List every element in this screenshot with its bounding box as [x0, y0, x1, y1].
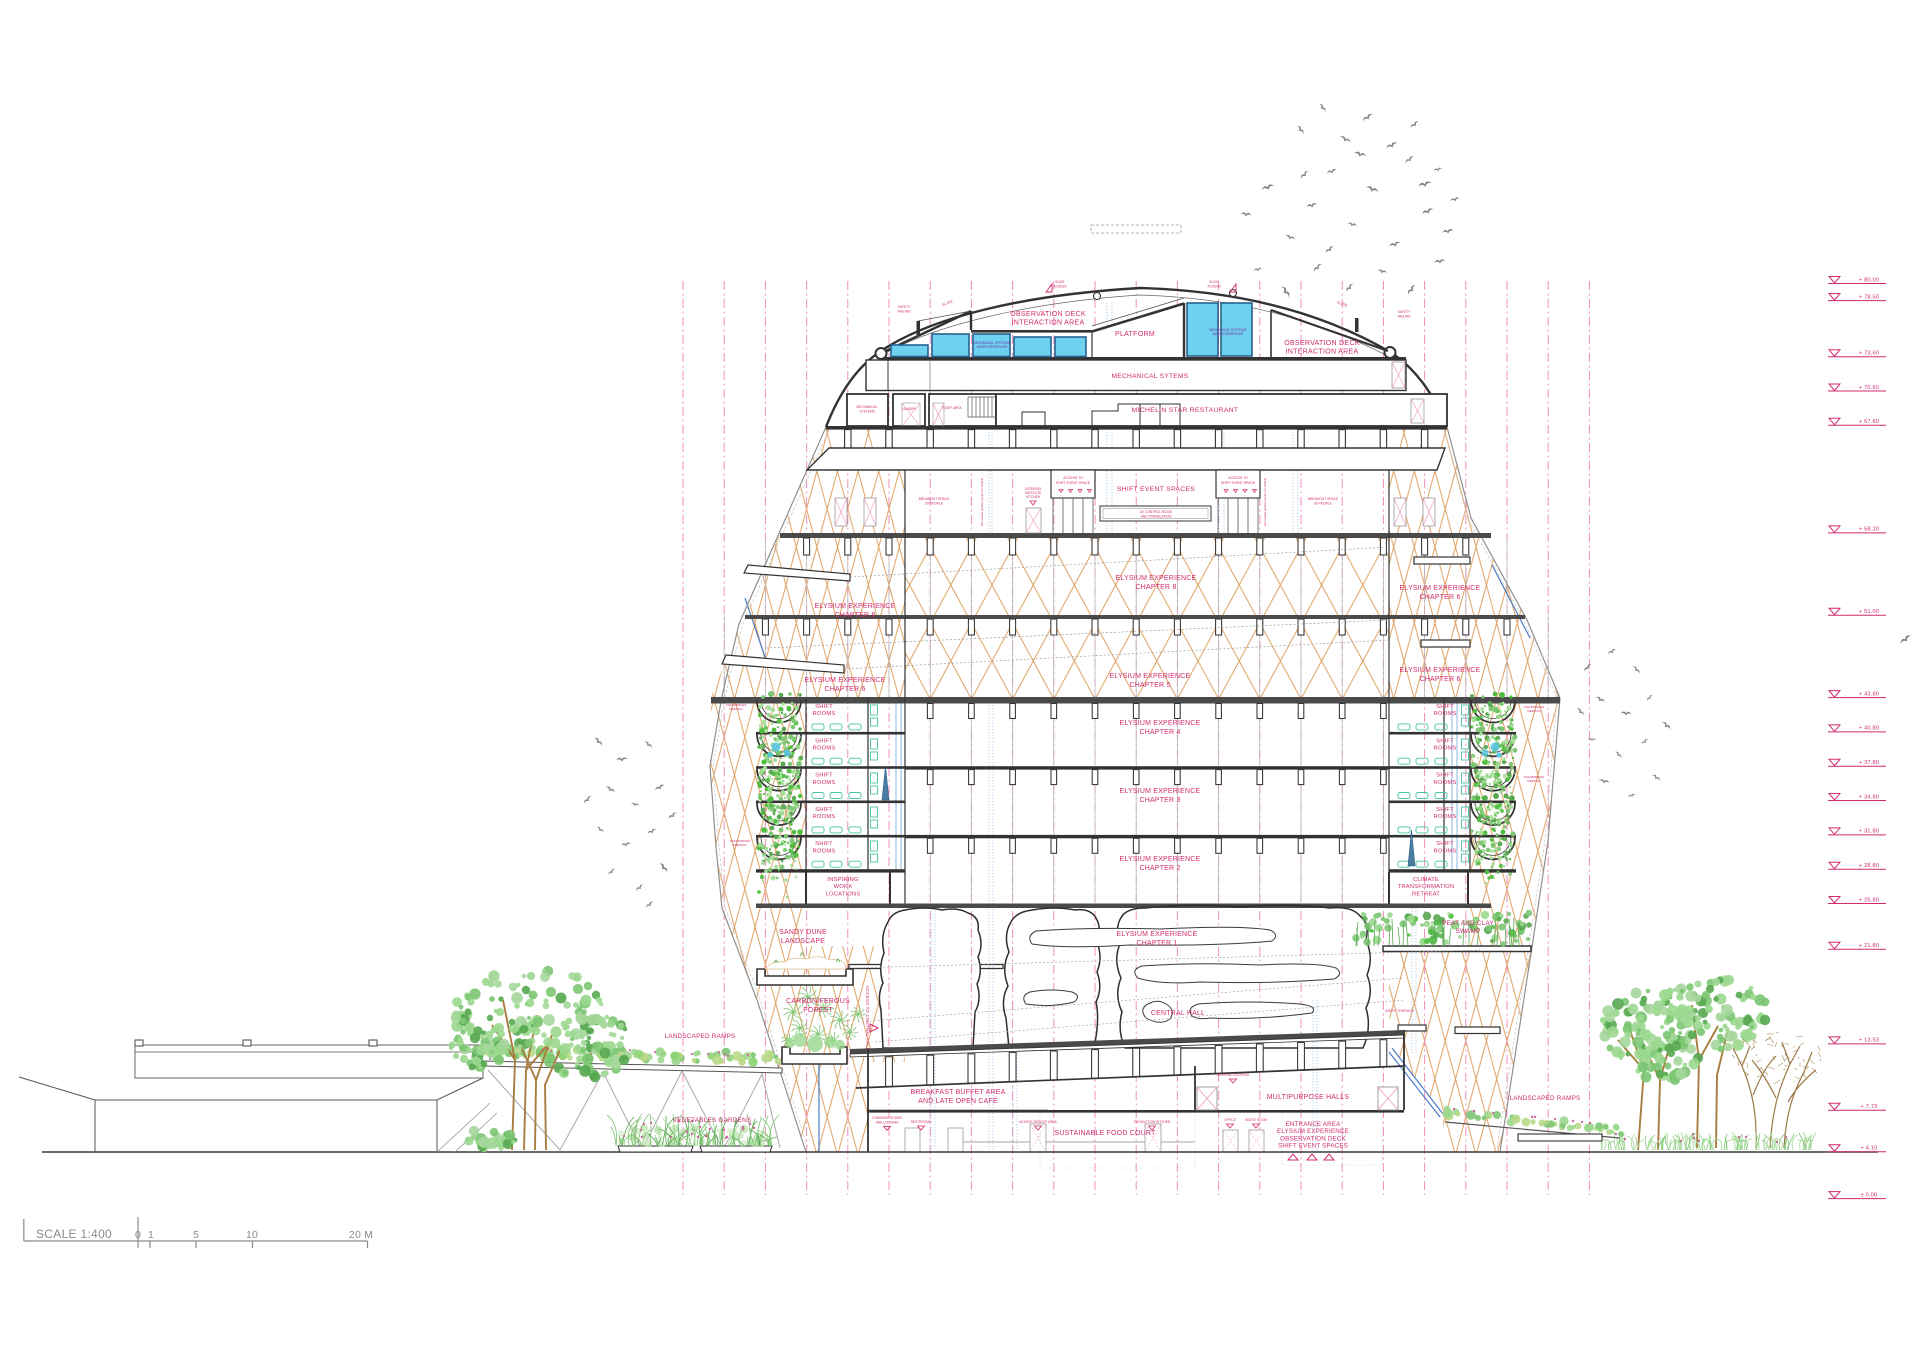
- svg-text:OBSERVATION DECK: OBSERVATION DECK: [1280, 1135, 1346, 1142]
- svg-text:BREAKFAST BUFFET AREA: BREAKFAST BUFFET AREA: [911, 1089, 1006, 1096]
- svg-text:ACCESS: ACCESS: [1053, 285, 1066, 289]
- svg-text:BREAKOUT SPACE: BREAKOUT SPACE: [919, 497, 951, 501]
- svg-text:WATER RESERVOIR: WATER RESERVOIR: [977, 345, 1008, 349]
- svg-text:ELYSIUM EXPERIENCE: ELYSIUM EXPERIENCE: [1120, 720, 1201, 727]
- svg-text:+ 78.50: + 78.50: [1859, 294, 1879, 300]
- svg-text:MEETING: MEETING: [1527, 709, 1541, 713]
- svg-text:+ 25.80: + 25.80: [1859, 897, 1879, 903]
- svg-text:ACCESS: ACCESS: [1207, 285, 1220, 289]
- svg-text:WEST TERRACE: WEST TERRACE: [1385, 1009, 1415, 1013]
- svg-text:ELYSIUM EXPERIENCE: ELYSIUM EXPERIENCE: [1400, 667, 1481, 674]
- svg-text:OBSERVATION DECK: OBSERVATION DECK: [1284, 340, 1360, 347]
- svg-text:ELYSIUM EXPERIENCE: ELYSIUM EXPERIENCE: [1110, 673, 1191, 680]
- svg-text:AND LATE OPEN CAFÉ: AND LATE OPEN CAFÉ: [918, 1096, 998, 1105]
- svg-text:KITCHEN: KITCHEN: [1026, 495, 1041, 499]
- svg-text:CARBONIFEROUS: CARBONIFEROUS: [786, 998, 850, 1005]
- svg-text:CHAPTER 5: CHAPTER 5: [1129, 682, 1170, 689]
- svg-text:CHAPTER 6: CHAPTER 6: [824, 686, 865, 693]
- svg-text:SCALE 1:400: SCALE 1:400: [36, 1227, 112, 1241]
- svg-text:+ 58.20: + 58.20: [1859, 527, 1879, 533]
- svg-text:LAUNDRY: LAUNDRY: [901, 407, 917, 411]
- svg-text:+ 51.00: + 51.00: [1859, 609, 1879, 615]
- svg-text:BREAKOUT SPACE: BREAKOUT SPACE: [1308, 497, 1340, 501]
- svg-text:+ 21.80: + 21.80: [1859, 943, 1879, 949]
- svg-text:SYSTEMS: SYSTEMS: [859, 410, 874, 414]
- svg-text:SHIFT EVENT SPACES: SHIFT EVENT SPACES: [1117, 486, 1195, 493]
- svg-text:SHIFT EVENT SPACE: SHIFT EVENT SPACE: [1056, 481, 1091, 485]
- svg-text:Removable partition system for: Removable partition system for flexible: [1263, 478, 1267, 526]
- svg-text:MEETING: MEETING: [729, 707, 743, 711]
- svg-text:MECHANICAL: MECHANICAL: [857, 405, 878, 409]
- svg-text:SHIFT: SHIFT: [815, 738, 833, 744]
- svg-text:AV CONTROL ROOM: AV CONTROL ROOM: [1140, 510, 1172, 514]
- svg-text:+ 70.60: + 70.60: [1859, 385, 1879, 391]
- svg-text:SHIFT EVENT SPACES: SHIFT EVENT SPACES: [1278, 1143, 1348, 1150]
- svg-text:MECHANICAL SYTEMS: MECHANICAL SYTEMS: [1111, 373, 1188, 380]
- svg-text:+ 4.10: + 4.10: [1861, 1146, 1878, 1152]
- svg-text:+ 40.80: + 40.80: [1859, 726, 1879, 732]
- svg-text:LANDSCAPED RAMPS: LANDSCAPED RAMPS: [664, 1033, 735, 1040]
- svg-text:ROOMS: ROOMS: [1434, 848, 1457, 854]
- svg-text:ROOMS: ROOMS: [1434, 814, 1457, 820]
- svg-text:WASTE ROOM: WASTE ROOM: [1245, 1118, 1267, 1122]
- svg-text:SHIFT: SHIFT: [815, 841, 833, 847]
- svg-text:+ 31.80: + 31.80: [1859, 829, 1879, 835]
- svg-text:+ 28.80: + 28.80: [1859, 863, 1879, 869]
- svg-text:ROOMS: ROOMS: [813, 848, 836, 854]
- svg-text:+ 37.80: + 37.80: [1859, 760, 1879, 766]
- svg-text:MULTIPURPOSE HALLS: MULTIPURPOSE HALLS: [1267, 1094, 1350, 1101]
- svg-text:± 0.00: ± 0.00: [1861, 1192, 1878, 1198]
- svg-text:MEETING: MEETING: [733, 843, 747, 847]
- svg-text:SWAMP: SWAMP: [1456, 928, 1481, 935]
- svg-text:SHIFT: SHIFT: [1436, 773, 1454, 779]
- svg-text:SHIFT: SHIFT: [1436, 704, 1454, 710]
- svg-text:ELYSIUM EXPERIENCE: ELYSIUM EXPERIENCE: [1120, 856, 1201, 863]
- svg-text:CHAPTER 3: CHAPTER 3: [1139, 797, 1180, 804]
- svg-text:SLIDE: SLIDE: [1055, 280, 1064, 284]
- svg-text:LANDSCAPED RAMPS: LANDSCAPED RAMPS: [1509, 1095, 1580, 1102]
- svg-text:CHAPTER 6: CHAPTER 6: [1419, 676, 1460, 683]
- svg-text:30 PEOPLE: 30 PEOPLE: [1314, 502, 1333, 506]
- svg-text:ELYSIUM EXPERIENCE: ELYSIUM EXPERIENCE: [815, 603, 896, 610]
- svg-text:AND TRANSLATION: AND TRANSLATION: [1141, 515, 1172, 519]
- svg-text:CHAPTER 8: CHAPTER 8: [1135, 584, 1176, 591]
- svg-text:TRANSFORMATION: TRANSFORMATION: [1398, 884, 1455, 890]
- svg-text:CHAPTER 1: CHAPTER 1: [1136, 940, 1177, 947]
- svg-text:ELYSIUM EXPERIENCE: ELYSIUM EXPERIENCE: [1117, 931, 1198, 938]
- svg-text:ACCESS SERVICE AREA: ACCESS SERVICE AREA: [1019, 1120, 1057, 1124]
- svg-text:STAFF AREA: STAFF AREA: [942, 406, 962, 410]
- svg-text:WATER RESERVOIR: WATER RESERVOIR: [1213, 332, 1244, 336]
- svg-text:RAILING: RAILING: [898, 310, 911, 314]
- svg-text:RESTROOMS: RESTROOMS: [911, 1120, 932, 1124]
- svg-text:ROOMS: ROOMS: [813, 814, 836, 820]
- svg-text:AND LOCKERS: AND LOCKERS: [876, 1120, 899, 1124]
- svg-text:ELYSIUM EXPERIENCE: ELYSIUM EXPERIENCE: [805, 677, 886, 684]
- svg-text:ACCESS TO: ACCESS TO: [1228, 476, 1248, 480]
- svg-text:SAFETY: SAFETY: [1398, 310, 1411, 314]
- svg-text:+ 13.53: + 13.53: [1859, 1038, 1879, 1044]
- svg-text:MEETING: MEETING: [1527, 779, 1541, 783]
- svg-text:+ 73.60: + 73.60: [1859, 351, 1879, 357]
- svg-text:WORK: WORK: [834, 884, 853, 890]
- svg-text:SHIFT: SHIFT: [1436, 841, 1454, 847]
- svg-text:1: 1: [148, 1229, 154, 1241]
- svg-text:PLATFORM: PLATFORM: [1115, 331, 1155, 338]
- svg-text:ELYSIUM EXPERIENCE: ELYSIUM EXPERIENCE: [1120, 788, 1201, 795]
- svg-text:+ 43.80: + 43.80: [1859, 691, 1879, 697]
- svg-text:INSPIRING: INSPIRING: [827, 877, 859, 883]
- svg-text:ROOMS: ROOMS: [813, 711, 836, 717]
- svg-text:ELYSIUM EXPERIENCE: ELYSIUM EXPERIENCE: [1116, 575, 1197, 582]
- svg-text:PRODUCTION KITCHEN: PRODUCTION KITCHEN: [1134, 1120, 1171, 1124]
- svg-text:ROOMS: ROOMS: [813, 746, 836, 752]
- svg-text:SHIFT EVENT SPACE: SHIFT EVENT SPACE: [1221, 481, 1256, 485]
- svg-text:SANDY DUNE: SANDY DUNE: [779, 929, 827, 936]
- svg-text:SHIFT: SHIFT: [815, 807, 833, 813]
- svg-text:ELYSIUM EXPERIENCE: ELYSIUM EXPERIENCE: [1400, 585, 1481, 592]
- svg-text:CHAPTER 4: CHAPTER 4: [1139, 729, 1180, 736]
- svg-text:5: 5: [193, 1229, 199, 1241]
- svg-text:CLIMATE: CLIMATE: [1413, 877, 1439, 883]
- svg-text:SUSTAINABLE FOOD COURT: SUSTAINABLE FOOD COURT: [1055, 1130, 1157, 1137]
- svg-text:SLIDE: SLIDE: [1209, 280, 1218, 284]
- svg-text:+ 7.73: + 7.73: [1861, 1104, 1878, 1110]
- svg-text:30 PEOPLE: 30 PEOPLE: [925, 502, 944, 506]
- svg-text:+ 67.60: + 67.60: [1859, 419, 1879, 425]
- svg-text:ACCESS TO: ACCESS TO: [1063, 476, 1083, 480]
- svg-text:0: 0: [135, 1229, 141, 1241]
- svg-text:LOCATIONS: LOCATIONS: [826, 891, 861, 897]
- svg-text:INTERACTION AREA: INTERACTION AREA: [1012, 320, 1085, 327]
- svg-text:ROOMS: ROOMS: [1434, 780, 1457, 786]
- svg-text:ACCESS TO CENTRAL HALL: ACCESS TO CENTRAL HALL: [865, 986, 870, 1051]
- svg-text:10: 10: [246, 1229, 258, 1241]
- svg-text:ROOMS: ROOMS: [1434, 711, 1457, 717]
- svg-text:VEGETABLES GARDENS: VEGETABLES GARDENS: [673, 1117, 752, 1124]
- svg-text:ELYSIUM EXPERIENCE: ELYSIUM EXPERIENCE: [1277, 1128, 1349, 1135]
- svg-text:SHIFT: SHIFT: [1436, 738, 1454, 744]
- svg-text:FOREST: FOREST: [803, 1007, 833, 1014]
- svg-text:SHIFT: SHIFT: [815, 773, 833, 779]
- svg-text:INTERACTION AREA: INTERACTION AREA: [1286, 349, 1359, 356]
- svg-text:OFFICE: OFFICE: [1224, 1118, 1236, 1122]
- svg-text:CHAPTER 6: CHAPTER 6: [834, 612, 875, 619]
- svg-text:WORKING STATIONS: WORKING STATIONS: [1217, 1073, 1249, 1077]
- svg-text:SHIFT: SHIFT: [815, 704, 833, 710]
- svg-text:CHAPTER 6: CHAPTER 6: [1419, 594, 1460, 601]
- svg-text:ENTRANCE AREA: ENTRANCE AREA: [1286, 1121, 1342, 1128]
- svg-text:CENTRAL HALL: CENTRAL HALL: [1151, 1010, 1205, 1017]
- svg-text:MICHELIN STAR RESTAURANT: MICHELIN STAR RESTAURANT: [1132, 407, 1239, 414]
- svg-text:+ 80.00: + 80.00: [1859, 277, 1879, 283]
- svg-text:RETREAT: RETREAT: [1412, 891, 1440, 897]
- svg-text:RAILING: RAILING: [1398, 315, 1411, 319]
- svg-text:ROOMS: ROOMS: [813, 780, 836, 786]
- svg-text:ROOMS: ROOMS: [1434, 746, 1457, 752]
- svg-text:CHAPTER 2: CHAPTER 2: [1139, 865, 1180, 872]
- svg-text:LANDSCAPE: LANDSCAPE: [781, 938, 825, 945]
- svg-text:SAFETY: SAFETY: [898, 305, 911, 309]
- svg-text:20 M: 20 M: [349, 1229, 373, 1241]
- svg-text:Removable partition system for: Removable partition system for flexible: [980, 478, 984, 526]
- svg-text:+ 34.80: + 34.80: [1859, 794, 1879, 800]
- svg-text:SHIFT: SHIFT: [1436, 807, 1454, 813]
- svg-text:OBSERVATION DECK: OBSERVATION DECK: [1010, 311, 1086, 318]
- svg-text:PEAT AND CLAY: PEAT AND CLAY: [1442, 920, 1494, 927]
